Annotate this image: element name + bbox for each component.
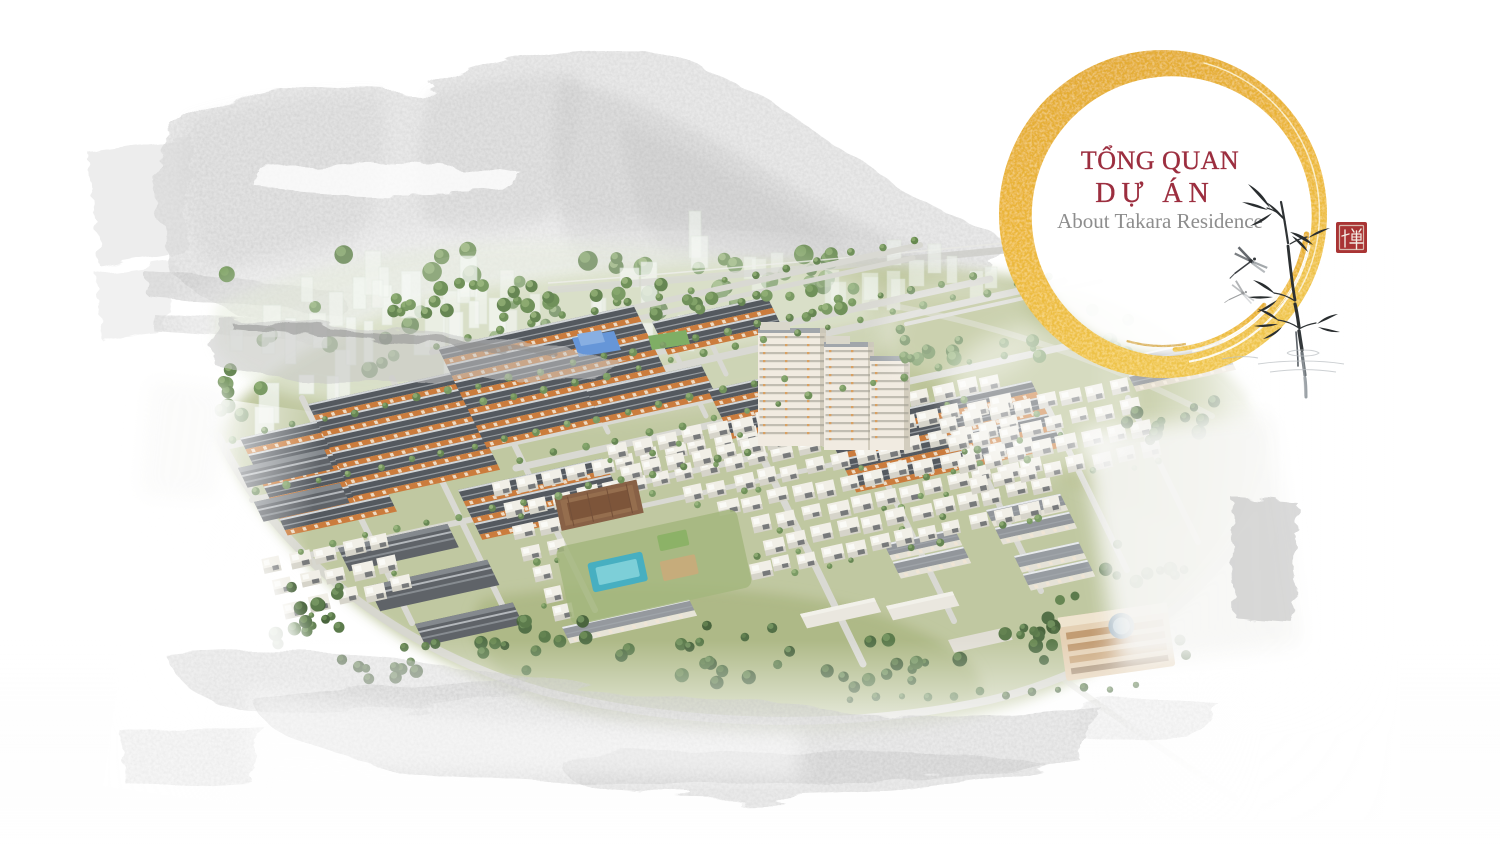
svg-text:TỔNG QUAN: TỔNG QUAN: [1081, 146, 1239, 175]
svg-text:DỰ ÁN: DỰ ÁN: [1095, 178, 1214, 209]
svg-text:About Takara Residence: About Takara Residence: [1057, 209, 1263, 233]
